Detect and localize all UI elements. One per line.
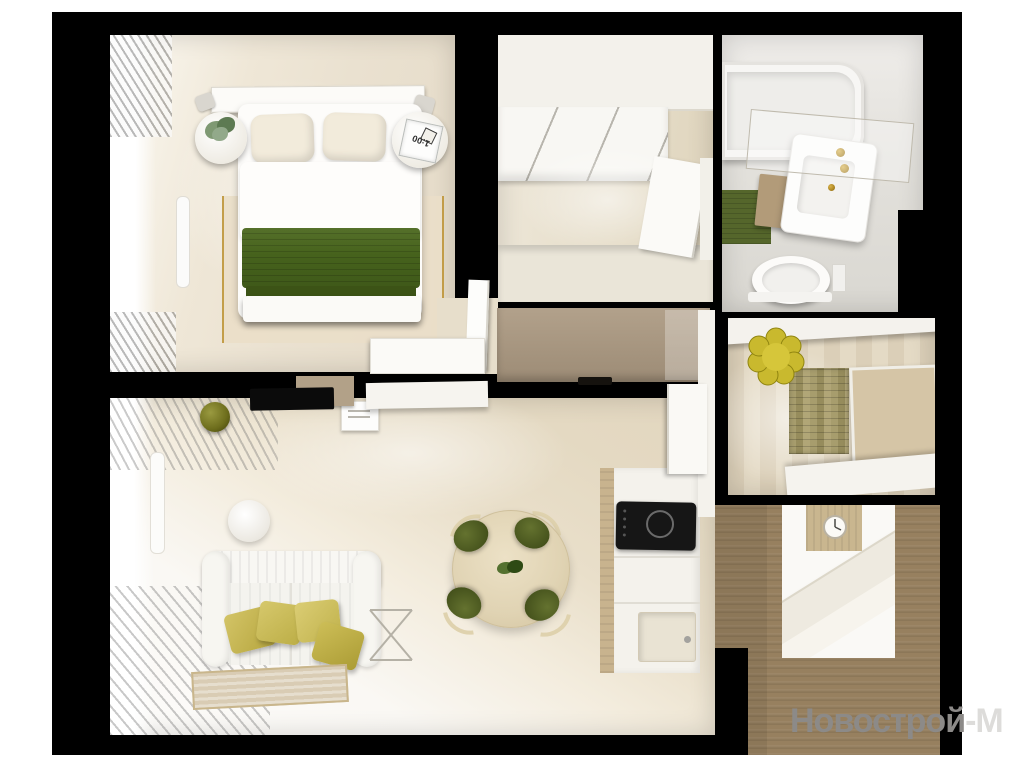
cooktop-control-dot xyxy=(623,517,626,520)
bedroom-curtain-top xyxy=(110,35,172,137)
cabinet-handle xyxy=(578,377,612,385)
bed-pillow-left xyxy=(250,113,315,164)
olive-pouf xyxy=(200,402,230,432)
nightstand-plant xyxy=(205,117,239,147)
wall-notch xyxy=(898,210,923,312)
floor-plan-page: 1:00 xyxy=(0,0,1016,768)
bedroom-dresser xyxy=(370,338,485,374)
bedroom-curtain-bottom xyxy=(110,312,176,372)
cooktop-control-dot xyxy=(623,525,626,528)
gold-faucet-knob xyxy=(828,184,835,191)
bed-pillow-right xyxy=(322,112,387,162)
round-side-table xyxy=(228,500,270,542)
bedroom-radiator xyxy=(176,196,190,288)
room-entry-hall xyxy=(498,35,713,302)
mirror-glass-panel xyxy=(746,109,915,183)
apartment-walls-background: 1:00 xyxy=(52,12,962,755)
sink-faucet xyxy=(684,636,691,643)
watermark-text-light: -М xyxy=(965,702,1003,740)
watermark-text-dark: Новострой xyxy=(790,702,965,740)
wall-clock-icon xyxy=(822,514,848,540)
table-plant xyxy=(497,560,525,580)
tv-flat-screen xyxy=(250,387,334,410)
living-rug xyxy=(191,664,349,710)
living-light-glow xyxy=(250,398,570,518)
hall-door-frame xyxy=(700,158,713,260)
counter-seam xyxy=(614,602,700,604)
room-living-kitchen xyxy=(110,398,715,735)
induction-cooktop xyxy=(616,501,697,550)
hall-storage-closet xyxy=(498,35,713,111)
wall-notch xyxy=(715,648,748,755)
counter-seam xyxy=(614,556,700,558)
sofa-armrest-left xyxy=(202,551,230,667)
watermark: Новострой-М xyxy=(790,702,1003,741)
floating-shelf xyxy=(366,381,488,409)
bed-footboard xyxy=(243,296,421,322)
room-inner-hall xyxy=(728,318,935,495)
cooktop-control-dot xyxy=(623,533,626,536)
nightstand-clock: 1:00 xyxy=(398,118,443,163)
room-bathroom xyxy=(722,35,923,312)
kitchen-open-door xyxy=(667,384,707,474)
cooktop-control-dot xyxy=(623,509,626,512)
burner-ring-icon xyxy=(646,510,674,538)
wall-switch-plate xyxy=(832,264,846,292)
closet-interior xyxy=(782,505,895,658)
room-bedroom: 1:00 xyxy=(110,35,455,372)
metal-frame-side-table xyxy=(368,600,414,666)
bed-green-blanket xyxy=(242,228,420,288)
living-radiator xyxy=(150,452,165,554)
toilet-cistern xyxy=(748,292,832,302)
yellow-flower-pouf xyxy=(746,326,806,386)
